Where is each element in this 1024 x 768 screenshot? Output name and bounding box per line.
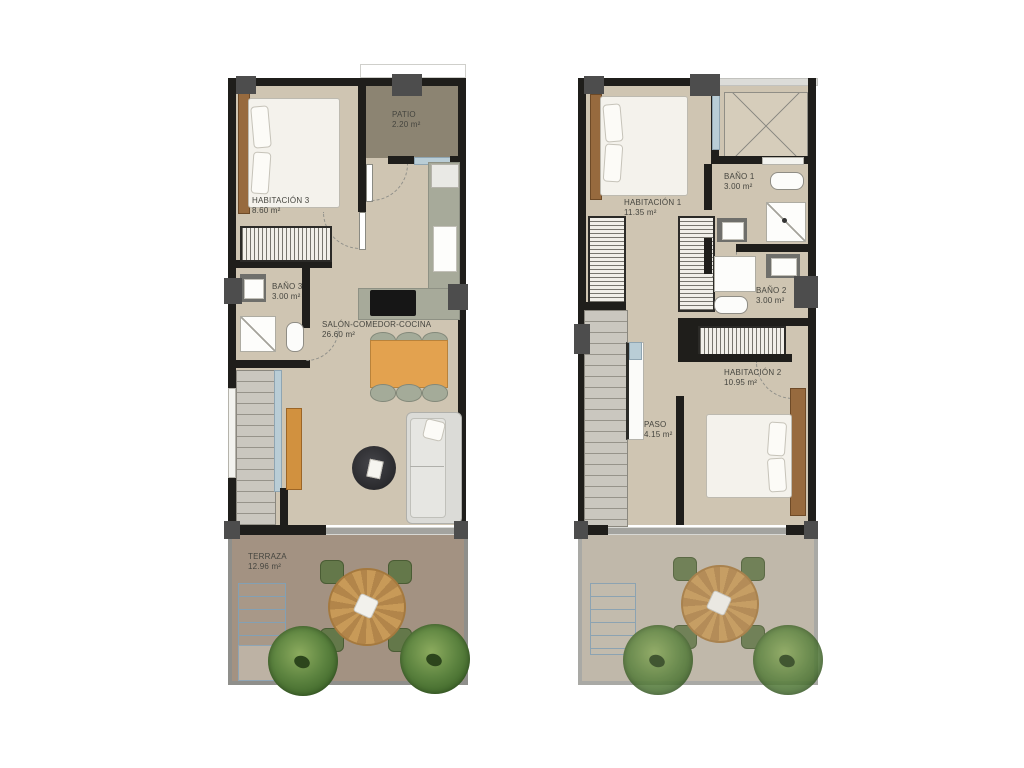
pillar (584, 76, 604, 94)
sliding-glass-door (608, 527, 786, 535)
bathtub (714, 256, 756, 292)
pillar (574, 324, 590, 354)
fridge (431, 164, 459, 188)
dining-chair (396, 384, 422, 402)
sink-basin (771, 258, 797, 276)
staircase (584, 310, 628, 527)
room-label-habitacion1: HABITACIÓN 1 11.35 m² (624, 198, 681, 219)
room-label-patio: PATIO 2.20 m² (392, 110, 421, 131)
room-label-bano3: BAÑO 3 3.00 m² (272, 282, 303, 303)
staircase (236, 370, 276, 527)
dining-table (370, 340, 448, 388)
room-label-paso: PASO 4.15 m² (644, 420, 673, 441)
floor-plan-right: HABITACIÓN 1 11.35 m² BAÑO 1 3.00 m² BAÑ… (578, 78, 818, 690)
pillar (804, 521, 818, 539)
wardrobe (240, 226, 332, 262)
toilet (714, 296, 748, 314)
pillar (574, 521, 588, 539)
sliding-glass-door (326, 527, 454, 535)
room-area: 26.60 m² (322, 330, 431, 340)
sofa-cushion-line (410, 466, 444, 467)
wall-segment (676, 396, 684, 525)
wall-segment (686, 326, 698, 354)
wall-segment (230, 78, 466, 86)
room-label-habitacion2: HABITACIÓN 2 10.95 m² (724, 368, 781, 389)
room-name: SALÓN-COMEDOR-COCINA (322, 320, 431, 330)
wall-segment (736, 244, 810, 252)
room-label-bano2: BAÑO 2 3.00 m² (756, 286, 787, 307)
wardrobe (588, 216, 626, 312)
room-area: 10.95 m² (724, 378, 781, 388)
room-name: BAÑO 1 (724, 172, 755, 182)
terrace-furniture-group (578, 535, 818, 690)
toilet (770, 172, 804, 190)
wall-segment (358, 156, 366, 164)
toilet (286, 322, 304, 352)
wall-segment (678, 318, 811, 326)
wall-segment (302, 268, 310, 328)
kitchen-sink (433, 226, 457, 272)
room-name: HABITACIÓN 3 (252, 196, 309, 206)
shower-drain (782, 218, 787, 223)
room-name: HABITACIÓN 2 (724, 368, 781, 378)
pillow (767, 421, 787, 456)
room-area: 3.00 m² (272, 292, 303, 302)
room-area: 3.00 m² (756, 296, 787, 306)
wall-segment (704, 238, 712, 274)
room-area: 4.15 m² (644, 430, 673, 440)
patio-void (724, 92, 808, 160)
pillow (250, 105, 272, 148)
pillar (392, 74, 422, 96)
cooktop (370, 290, 416, 316)
bedroom-door-leaf (359, 212, 366, 250)
room-label-terraza: TERRAZA 12.96 m² (248, 552, 287, 573)
window (762, 157, 804, 165)
pillar (454, 521, 468, 539)
pillow (602, 103, 623, 142)
wall-segment (358, 78, 366, 212)
wall-segment (580, 302, 626, 310)
pillar (794, 276, 818, 308)
dining-chair (422, 384, 448, 402)
wall-segment (678, 354, 792, 362)
floor-plan-left: HABITACIÓN 3 8.60 m² PATIO 2.20 m² BAÑO … (228, 78, 468, 690)
bed-headboard (790, 388, 806, 516)
pillow (251, 151, 272, 194)
pillar (448, 284, 468, 310)
room-area: 8.60 m² (252, 206, 309, 216)
room-label-bano1: BAÑO 1 3.00 m² (724, 172, 755, 193)
wall-segment (230, 360, 310, 368)
room-name: BAÑO 2 (756, 286, 787, 296)
room-area: 2.20 m² (392, 120, 421, 130)
wall-segment (704, 164, 712, 210)
terrace-wall (228, 535, 232, 685)
wall-segment (280, 488, 288, 525)
roof-edge (719, 78, 818, 86)
stair-railing (274, 370, 282, 492)
stair-railing (629, 342, 642, 360)
room-label-salon: SALÓN-COMEDOR-COCINA 26.60 m² (322, 320, 431, 341)
room-name: BAÑO 3 (272, 282, 303, 292)
pillar (690, 74, 720, 96)
shower (240, 316, 276, 352)
room-name: TERRAZA (248, 552, 287, 562)
sink-basin (722, 222, 744, 240)
pillow (767, 457, 787, 492)
pillar (224, 521, 240, 539)
pillow (603, 143, 624, 182)
console-sideboard (286, 408, 302, 490)
wall-segment (228, 525, 326, 535)
pillar (224, 278, 242, 304)
room-label-habitacion3: HABITACIÓN 3 8.60 m² (252, 196, 309, 217)
room-area: 12.96 m² (248, 562, 287, 572)
dining-chair (370, 384, 396, 402)
room-area: 11.35 m² (624, 208, 681, 218)
window (712, 92, 720, 150)
pillar (236, 76, 256, 94)
sink-basin (244, 279, 264, 299)
room-name: HABITACIÓN 1 (624, 198, 681, 208)
window (228, 388, 236, 478)
room-name: PATIO (392, 110, 421, 120)
room-name: PASO (644, 420, 673, 430)
wall-segment (388, 156, 414, 164)
room-area: 3.00 m² (724, 182, 755, 192)
